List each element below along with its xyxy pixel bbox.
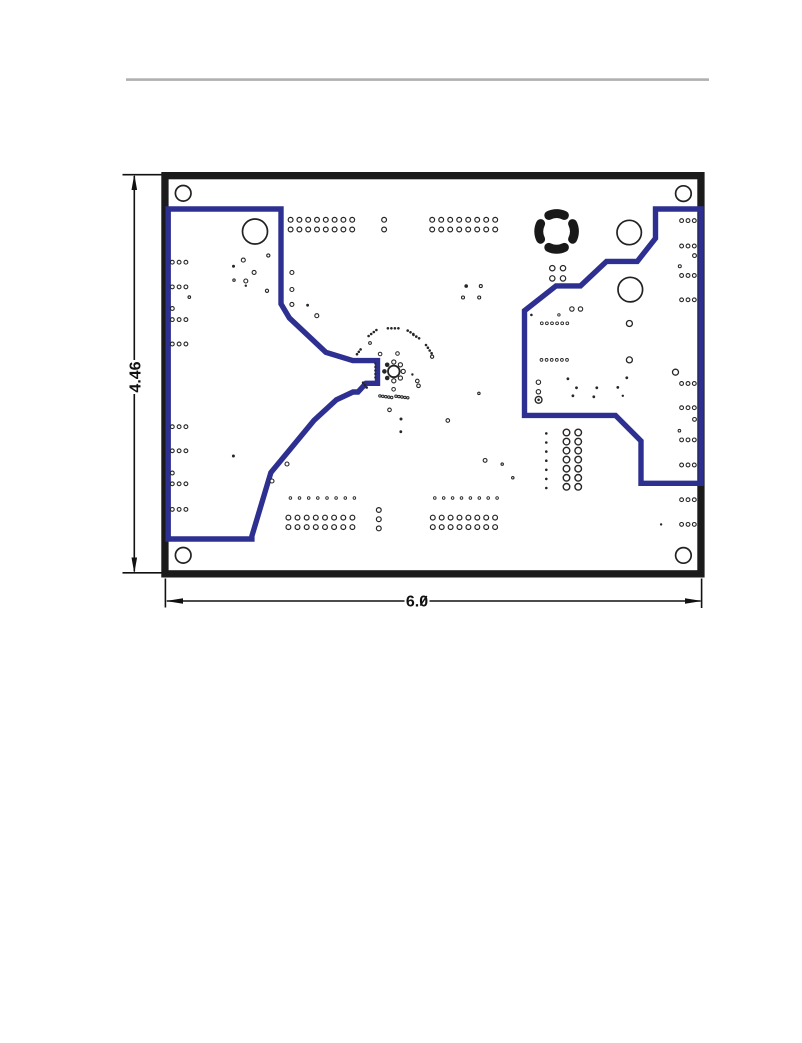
svg-text:6.0: 6.0 — [406, 593, 428, 610]
svg-text:4.46: 4.46 — [127, 361, 144, 392]
